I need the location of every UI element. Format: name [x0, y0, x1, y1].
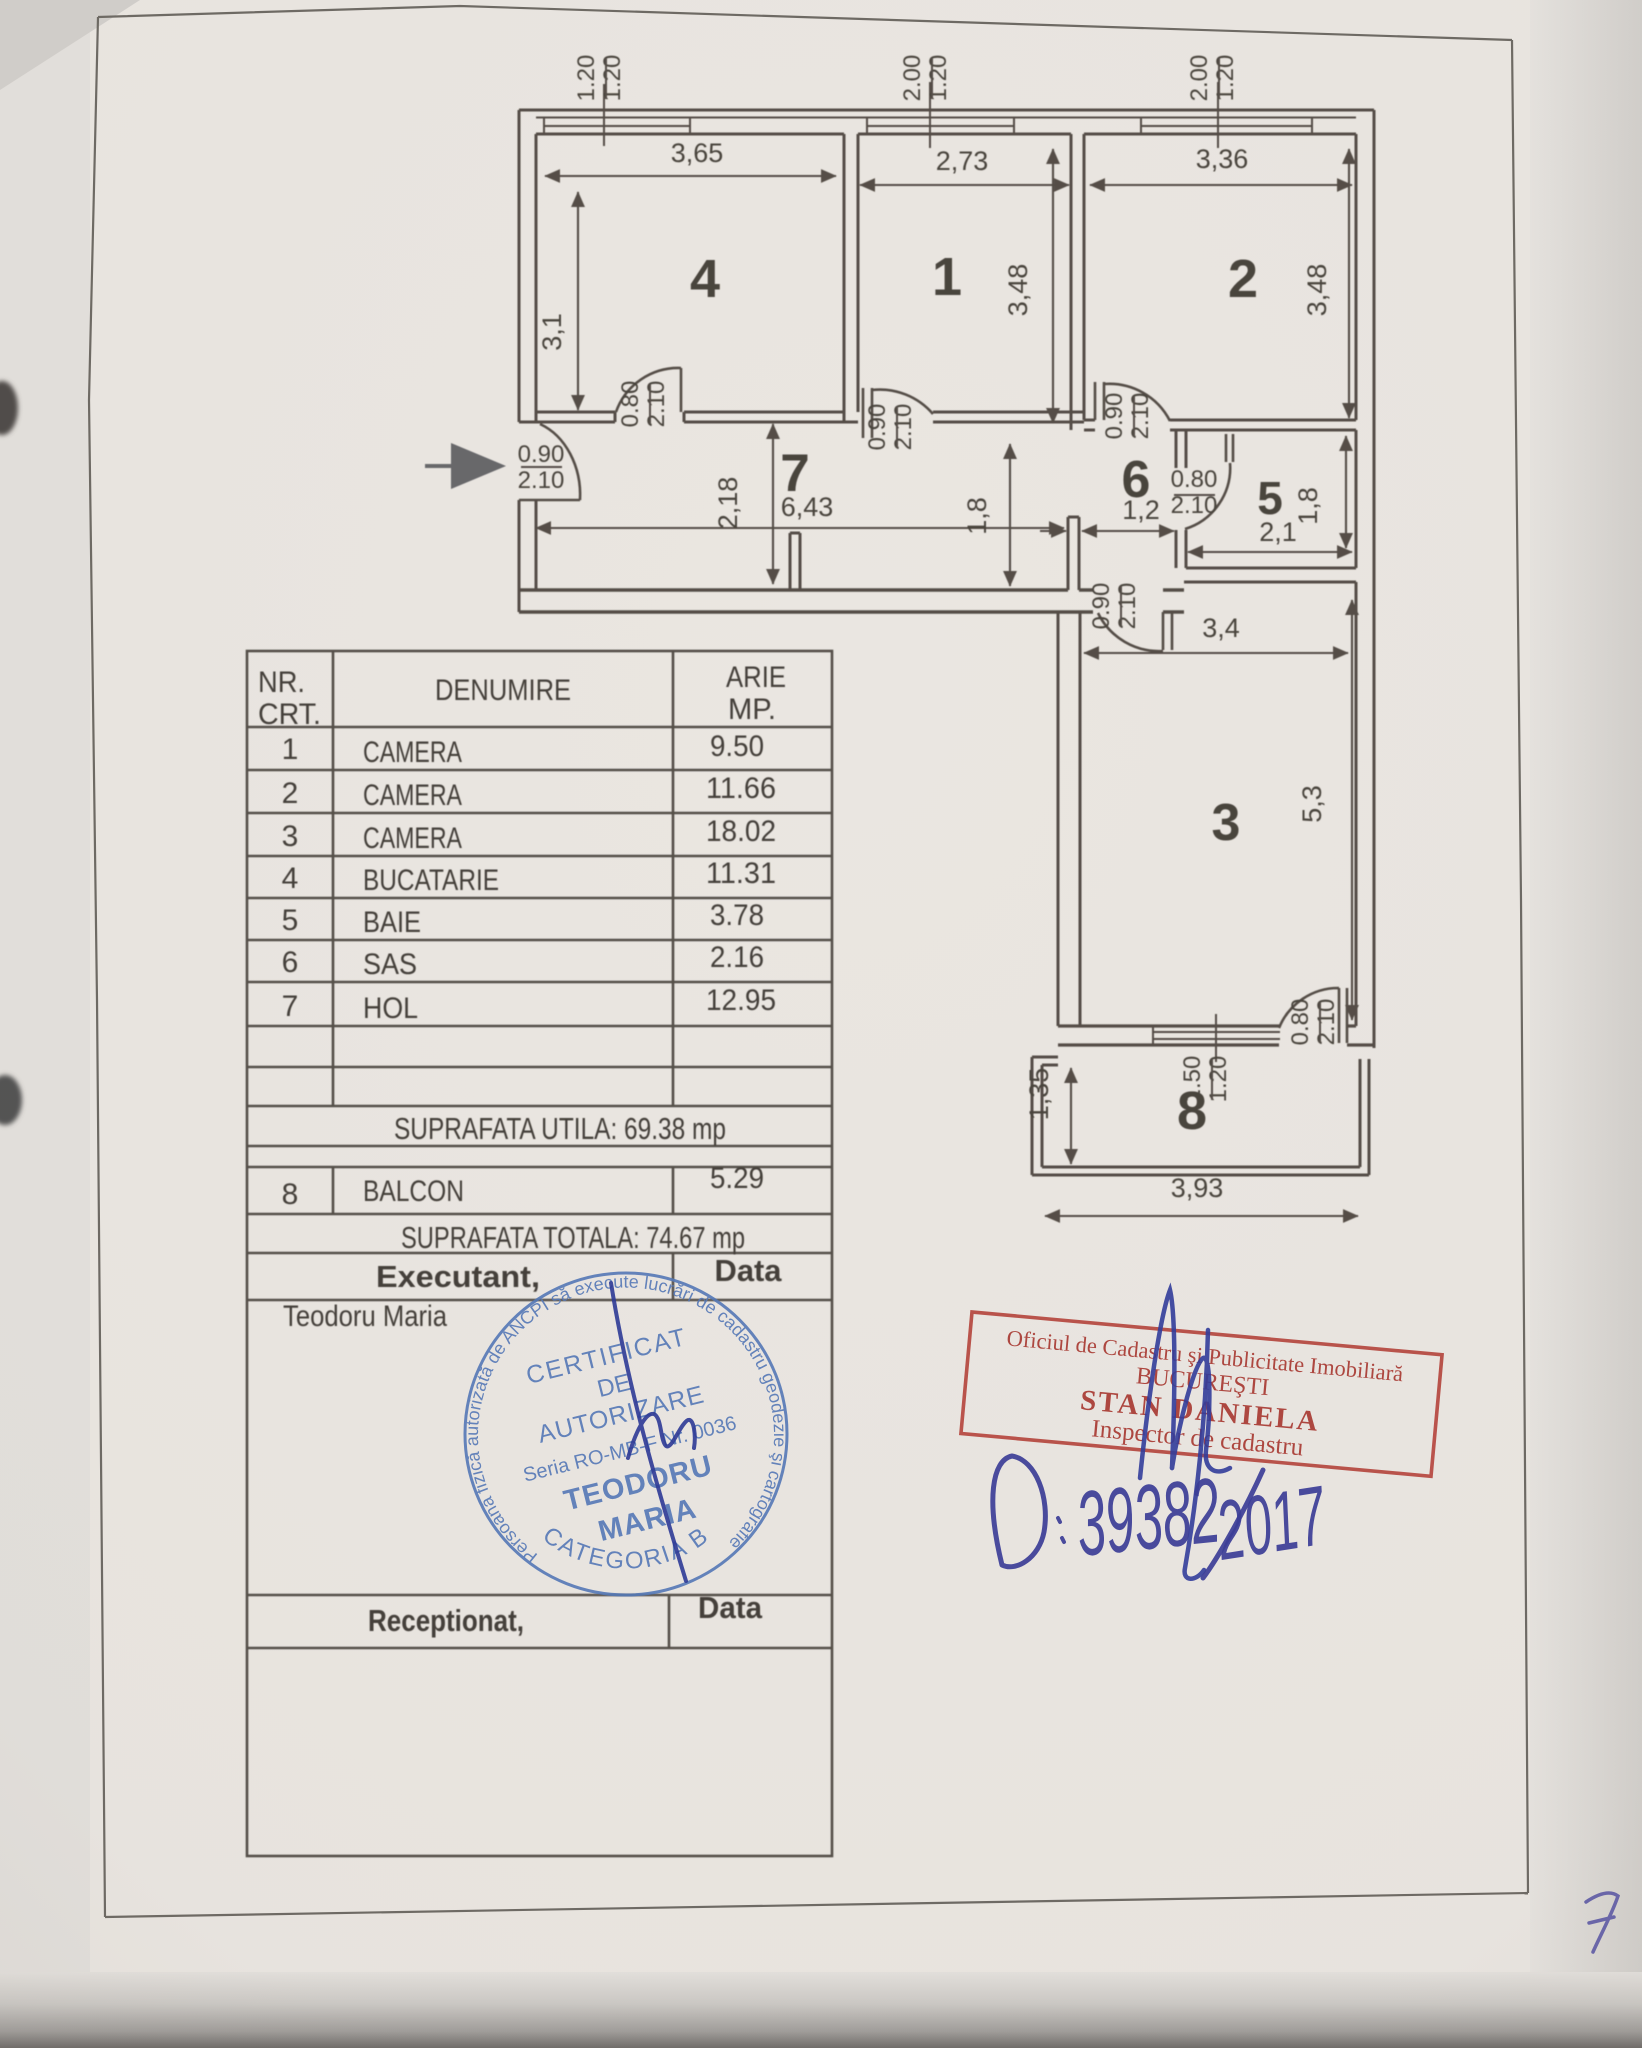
svg-text:SUPRAFATA UTILA: 69.38 mp: SUPRAFATA UTILA: 69.38 mp — [394, 1111, 726, 1146]
svg-text:0.90: 0.90 — [518, 441, 565, 468]
svg-text:CAMERA: CAMERA — [363, 736, 462, 769]
svg-text:1,8: 1,8 — [962, 497, 992, 535]
svg-text:7: 7 — [282, 990, 299, 1023]
svg-text:12.95: 12.95 — [706, 984, 776, 1017]
svg-text:18.02: 18.02 — [706, 815, 776, 848]
svg-text:2.00: 2.00 — [899, 55, 926, 102]
svg-text:2: 2 — [1228, 249, 1258, 309]
svg-text:Executant,: Executant, — [376, 1259, 540, 1294]
svg-text:3,36: 3,36 — [1196, 144, 1249, 174]
svg-text:3,4: 3,4 — [1202, 613, 1240, 643]
svg-text:1,2: 1,2 — [1122, 495, 1160, 525]
svg-text:1,35: 1,35 — [1024, 1068, 1054, 1121]
svg-text:5,3: 5,3 — [1297, 785, 1327, 823]
svg-text:SAS: SAS — [363, 948, 417, 981]
svg-text:3,48: 3,48 — [1302, 264, 1332, 317]
svg-text:Receptionat,: Receptionat, — [368, 1603, 524, 1638]
svg-text:1.50: 1.50 — [1179, 1056, 1206, 1103]
svg-text:11.31: 11.31 — [706, 857, 776, 890]
svg-text:2.10: 2.10 — [643, 381, 670, 428]
svg-text:1,8: 1,8 — [1293, 487, 1323, 525]
svg-text:3.78: 3.78 — [710, 899, 764, 932]
svg-text:1.20: 1.20 — [599, 55, 626, 102]
svg-text:2.16: 2.16 — [710, 941, 764, 974]
svg-text:9.50: 9.50 — [710, 730, 764, 763]
svg-text:Data: Data — [715, 1253, 783, 1288]
svg-text:1: 1 — [282, 733, 299, 766]
svg-text:BALCON: BALCON — [363, 1175, 464, 1208]
svg-text:DENUMIRE: DENUMIRE — [435, 674, 571, 707]
svg-text:ARIE: ARIE — [726, 661, 786, 694]
svg-text:39382: 39382 — [1071, 1459, 1224, 1576]
svg-text:3,65: 3,65 — [671, 138, 724, 168]
svg-text:HOL: HOL — [363, 992, 418, 1025]
svg-text:3,48: 3,48 — [1003, 264, 1033, 317]
svg-text:5: 5 — [282, 904, 299, 937]
svg-text:2017: 2017 — [1209, 1468, 1333, 1578]
svg-text:0.80: 0.80 — [1171, 466, 1218, 493]
svg-text:2,18: 2,18 — [713, 477, 743, 530]
svg-text:Teodoru Maria: Teodoru Maria — [283, 1300, 447, 1333]
svg-text:6,43: 6,43 — [781, 492, 834, 522]
svg-text:NR.: NR. — [258, 666, 305, 699]
svg-text:MP.: MP. — [728, 693, 776, 726]
svg-text:8: 8 — [282, 1178, 299, 1211]
svg-text:0.80: 0.80 — [1287, 999, 1314, 1046]
svg-text:2,73: 2,73 — [936, 146, 989, 176]
svg-text:1.20: 1.20 — [925, 55, 952, 102]
svg-text:4: 4 — [282, 862, 299, 895]
svg-text:2.10: 2.10 — [890, 404, 917, 451]
svg-text:2.10: 2.10 — [518, 467, 565, 494]
svg-text:2.10: 2.10 — [1313, 999, 1340, 1046]
svg-text:2.10: 2.10 — [1171, 492, 1218, 519]
svg-text:0.90: 0.90 — [864, 404, 891, 451]
svg-text:Data: Data — [698, 1590, 763, 1625]
svg-text:3,93: 3,93 — [1171, 1173, 1224, 1203]
svg-text:2.10: 2.10 — [1127, 393, 1154, 440]
svg-text:2.10: 2.10 — [1114, 583, 1141, 630]
svg-text:3: 3 — [1212, 794, 1241, 852]
svg-text:1.20: 1.20 — [1205, 1056, 1232, 1103]
svg-text:1.20: 1.20 — [573, 55, 600, 102]
svg-text:CAMERA: CAMERA — [363, 822, 462, 855]
svg-text:CAMERA: CAMERA — [363, 779, 462, 812]
svg-text:2: 2 — [282, 777, 299, 810]
svg-text:2,1: 2,1 — [1259, 517, 1297, 547]
svg-text:4: 4 — [690, 249, 720, 309]
svg-text:SUPRAFATA TOTALA: 74.67 mp: SUPRAFATA TOTALA: 74.67 mp — [401, 1220, 745, 1255]
svg-text:0.90: 0.90 — [1101, 393, 1128, 440]
svg-text:11.66: 11.66 — [706, 772, 776, 805]
svg-text:5.29: 5.29 — [710, 1162, 764, 1195]
svg-text:1.20: 1.20 — [1212, 55, 1239, 102]
svg-text:BUCATARIE: BUCATARIE — [363, 864, 499, 897]
svg-text:BAIE: BAIE — [363, 906, 421, 939]
svg-text:3,1: 3,1 — [537, 313, 567, 351]
svg-text:3: 3 — [282, 820, 299, 853]
svg-text:0.80: 0.80 — [617, 381, 644, 428]
svg-text:CRT.: CRT. — [258, 698, 321, 731]
svg-text:1: 1 — [932, 247, 962, 307]
svg-text:2.00: 2.00 — [1186, 55, 1213, 102]
svg-text:6: 6 — [282, 946, 299, 979]
svg-text:0.90: 0.90 — [1088, 583, 1115, 630]
